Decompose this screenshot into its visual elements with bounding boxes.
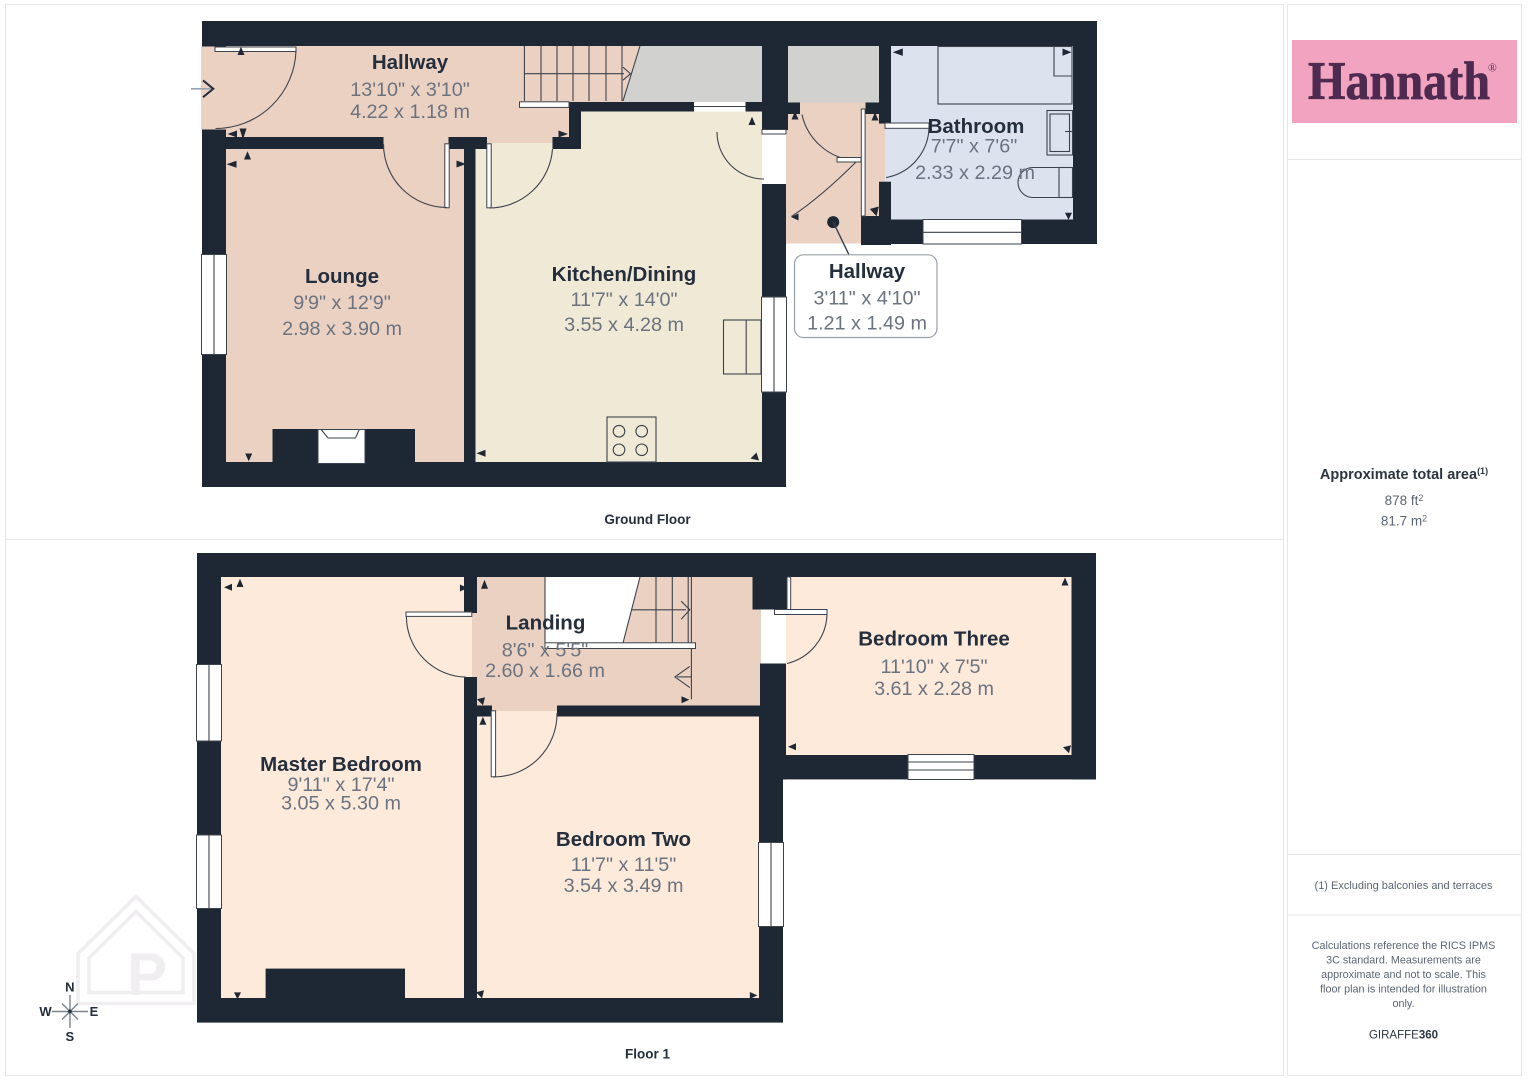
svg-text:Kitchen/Dining: Kitchen/Dining [552,263,697,286]
svg-text:11'7" x 11'5": 11'7" x 11'5" [571,854,677,876]
svg-text:11'7" x 14'0": 11'7" x 14'0" [570,289,677,311]
svg-text:Hallway: Hallway [372,51,449,74]
svg-text:Bedroom Two: Bedroom Two [556,828,691,851]
svg-text:81.7 m2: 81.7 m2 [1381,514,1427,529]
svg-text:13'10" x 3'10": 13'10" x 3'10" [350,79,470,101]
svg-text:3.55 x 4.28 m: 3.55 x 4.28 m [564,314,684,336]
svg-text:(1) Excluding balconies and te: (1) Excluding balconies and terraces [1315,880,1493,892]
svg-text:878 ft2: 878 ft2 [1385,493,1424,508]
svg-text:Bedroom Three: Bedroom Three [858,628,1010,651]
svg-text:Ground Floor: Ground Floor [604,512,691,527]
svg-text:Floor 1: Floor 1 [625,1047,670,1062]
svg-text:3.61 x 2.28 m: 3.61 x 2.28 m [874,678,994,700]
svg-text:N: N [65,980,74,995]
svg-text:W: W [39,1004,52,1019]
svg-text:2.33 x 2.29 m: 2.33 x 2.29 m [915,162,1035,184]
svg-text:S: S [65,1029,74,1044]
svg-text:3'11" x 4'10": 3'11" x 4'10" [813,288,920,310]
svg-text:Landing: Landing [506,612,586,635]
svg-text:Approximate total area(1): Approximate total area(1) [1320,466,1488,483]
svg-text:P: P [127,941,167,1008]
svg-text:8'6" x 5'5": 8'6" x 5'5" [502,640,589,662]
svg-text:®: ® [1488,63,1497,75]
svg-text:3.54 x 3.49 m: 3.54 x 3.49 m [564,875,684,897]
svg-text:Hallway: Hallway [829,260,906,283]
svg-text:2.98 x 3.90 m: 2.98 x 3.90 m [282,318,402,340]
svg-text:3.05 x 5.30 m: 3.05 x 5.30 m [281,793,401,815]
svg-text:4.22 x 1.18 m: 4.22 x 1.18 m [350,101,470,123]
svg-text:only.: only. [1392,998,1414,1010]
svg-text:GIRAFFE360: GIRAFFE360 [1369,1030,1438,1042]
svg-text:floor plan is intended for ill: floor plan is intended for illustration [1320,984,1487,996]
svg-text:approximate and not to scale.: approximate and not to scale. This [1321,969,1486,981]
svg-text:Lounge: Lounge [305,265,379,288]
svg-text:Hannath: Hannath [1308,51,1490,111]
svg-text:E: E [90,1004,99,1019]
svg-text:11'10" x 7'5": 11'10" x 7'5" [880,656,987,678]
svg-text:Calculations reference the RIC: Calculations reference the RICS IPMS [1312,940,1496,952]
svg-text:3C standard. Measurements are: 3C standard. Measurements are [1326,955,1481,967]
svg-text:9'9" x 12'9": 9'9" x 12'9" [293,292,391,314]
svg-text:7'7" x 7'6": 7'7" x 7'6" [931,136,1018,158]
svg-text:2.60 x 1.66 m: 2.60 x 1.66 m [485,660,605,682]
svg-text:Master Bedroom: Master Bedroom [260,753,422,776]
svg-text:1.21 x 1.49 m: 1.21 x 1.49 m [807,313,927,335]
